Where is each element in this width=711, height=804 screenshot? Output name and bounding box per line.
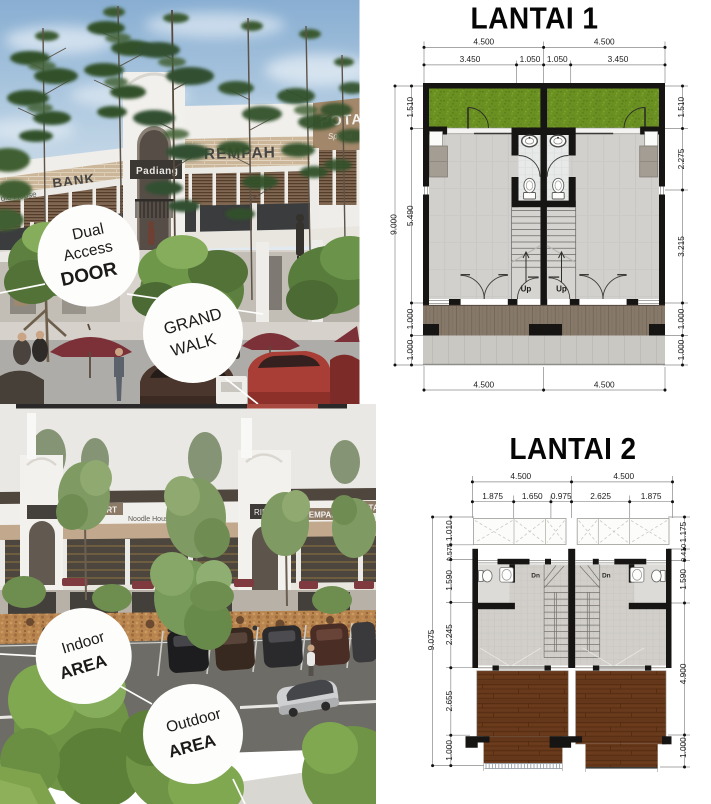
svg-text:1.175: 1.175 xyxy=(678,521,688,542)
svg-text:0.410: 0.410 xyxy=(679,544,688,562)
svg-text:5.490: 5.490 xyxy=(405,205,415,226)
svg-text:1.875: 1.875 xyxy=(482,491,503,501)
svg-text:Dn: Dn xyxy=(602,573,611,580)
svg-text:3.450: 3.450 xyxy=(608,54,629,64)
svg-text:3.215: 3.215 xyxy=(676,236,686,257)
svg-text:0.575: 0.575 xyxy=(445,543,454,561)
svg-text:1.875: 1.875 xyxy=(641,491,662,501)
svg-text:1.510: 1.510 xyxy=(405,97,415,118)
svg-text:LANTAI 2: LANTAI 2 xyxy=(510,431,637,466)
svg-text:1.000: 1.000 xyxy=(405,339,415,360)
svg-text:9.075: 9.075 xyxy=(426,629,436,650)
svg-text:2.245: 2.245 xyxy=(444,624,454,645)
svg-text:1.000: 1.000 xyxy=(676,339,686,360)
svg-text:1.590: 1.590 xyxy=(444,570,454,591)
svg-text:4.500: 4.500 xyxy=(594,37,615,47)
svg-text:4.500: 4.500 xyxy=(473,380,494,390)
svg-text:1.050: 1.050 xyxy=(547,54,568,64)
svg-text:1.510: 1.510 xyxy=(676,97,686,118)
svg-text:1.650: 1.650 xyxy=(522,491,543,501)
svg-text:9.000: 9.000 xyxy=(388,214,398,235)
svg-text:1.590: 1.590 xyxy=(678,569,688,590)
svg-text:1.000: 1.000 xyxy=(676,308,686,329)
svg-text:2.625: 2.625 xyxy=(590,491,611,501)
svg-text:2.655: 2.655 xyxy=(444,690,454,711)
svg-text:1.000: 1.000 xyxy=(678,737,688,758)
svg-text:4.500: 4.500 xyxy=(594,380,615,390)
svg-text:4.500: 4.500 xyxy=(510,471,531,481)
svg-text:1.000: 1.000 xyxy=(405,308,415,329)
svg-text:3.450: 3.450 xyxy=(460,54,481,64)
svg-text:1.000: 1.000 xyxy=(444,740,454,761)
svg-text:LANTAI 1: LANTAI 1 xyxy=(471,1,599,36)
svg-text:Padiang: Padiang xyxy=(136,166,178,177)
svg-text:4.500: 4.500 xyxy=(473,37,494,47)
svg-text:4.900: 4.900 xyxy=(678,663,688,684)
svg-text:2.275: 2.275 xyxy=(676,148,686,169)
svg-text:0.975: 0.975 xyxy=(551,491,572,501)
svg-text:Noodle House: Noodle House xyxy=(128,516,172,523)
svg-text:1.010: 1.010 xyxy=(444,520,454,541)
svg-text:1.050: 1.050 xyxy=(520,54,541,64)
svg-text:Dn: Dn xyxy=(531,573,540,580)
svg-text:4.500: 4.500 xyxy=(613,471,634,481)
